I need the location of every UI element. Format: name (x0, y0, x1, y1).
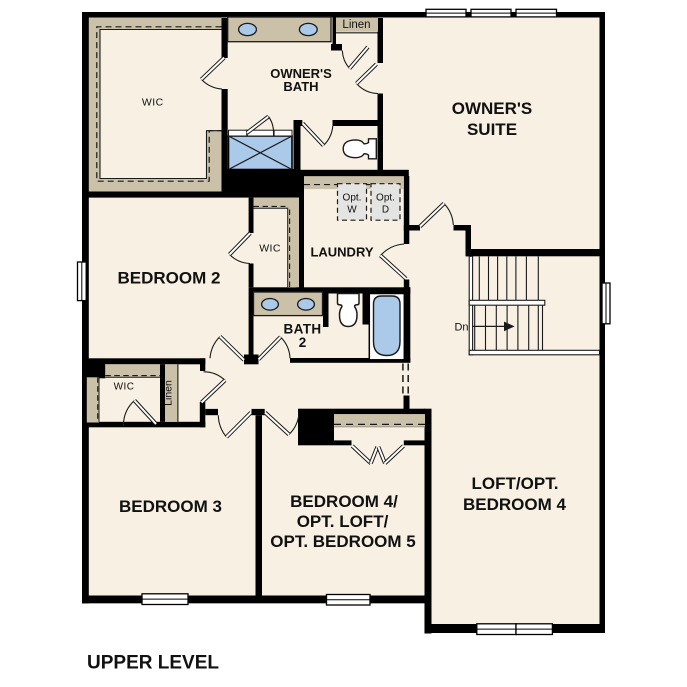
svg-text:2: 2 (299, 335, 307, 350)
svg-text:OPT. BEDROOM 5: OPT. BEDROOM 5 (270, 532, 415, 551)
svg-text:OWNER'S: OWNER'S (452, 99, 533, 118)
svg-text:BEDROOM 3: BEDROOM 3 (119, 497, 222, 516)
svg-text:BEDROOM 4: BEDROOM 4 (463, 495, 567, 514)
svg-text:UPPER LEVEL: UPPER LEVEL (87, 653, 219, 674)
svg-text:BEDROOM 4/: BEDROOM 4/ (290, 492, 398, 511)
svg-text:Linen: Linen (342, 19, 370, 31)
svg-text:Linen: Linen (163, 380, 175, 406)
svg-text:LOFT/OPT.: LOFT/OPT. (472, 474, 559, 493)
svg-text:BEDROOM 2: BEDROOM 2 (118, 269, 221, 288)
svg-text:Dn: Dn (454, 322, 468, 334)
svg-text:Opt.: Opt. (376, 193, 395, 204)
svg-text:OPT. LOFT/: OPT. LOFT/ (297, 512, 389, 531)
svg-text:WIC: WIC (259, 243, 281, 255)
svg-text:BATH: BATH (283, 79, 318, 94)
svg-text:WIC: WIC (142, 97, 164, 109)
svg-text:W: W (347, 205, 357, 216)
svg-text:WIC: WIC (114, 382, 135, 393)
svg-text:LAUNDRY: LAUNDRY (310, 245, 373, 260)
svg-text:Opt.: Opt. (343, 193, 362, 204)
svg-text:D: D (382, 205, 389, 216)
svg-text:SUITE: SUITE (467, 120, 517, 139)
